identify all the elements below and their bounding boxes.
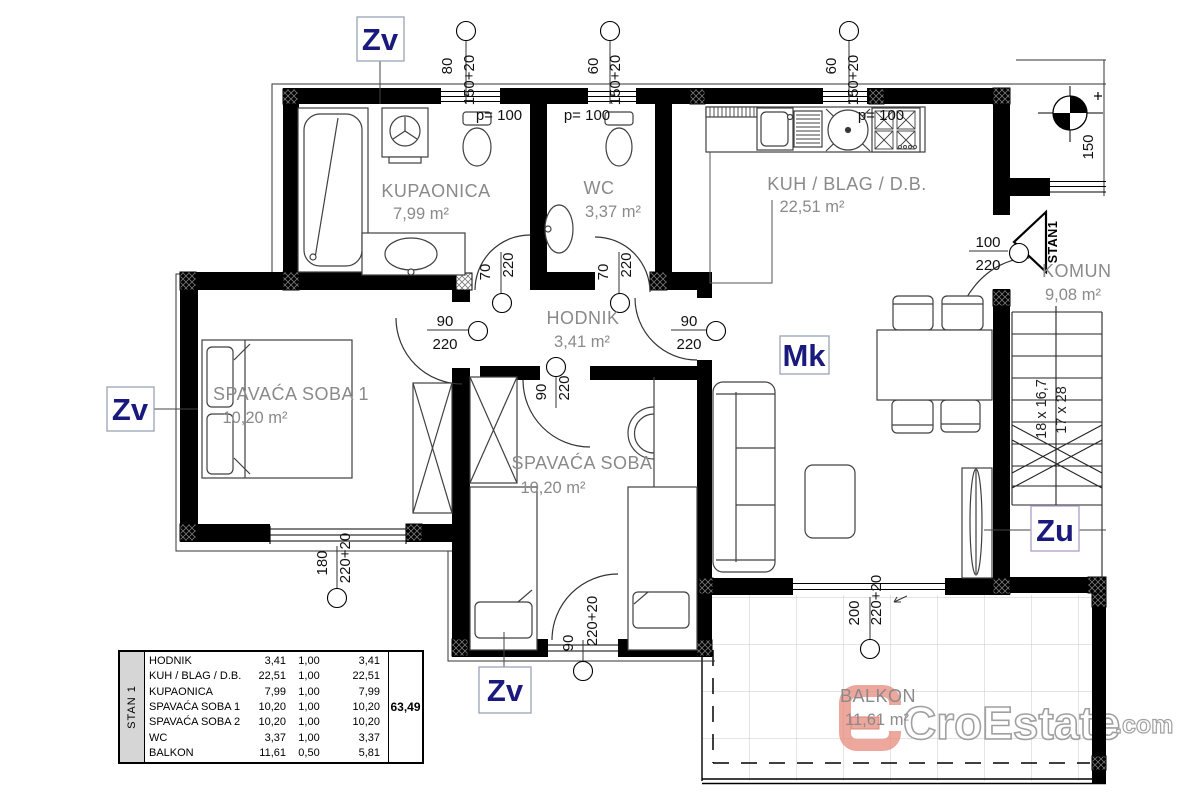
- row-area: 10,20: [242, 716, 286, 728]
- row-value: 3,41: [332, 655, 388, 667]
- stairs-tread-dim: 17 x 28: [1054, 386, 1070, 434]
- dining-chair: [893, 296, 933, 330]
- marker-zu: Zu: [1036, 513, 1074, 548]
- table-row: KUPAONICA 7,99 1,00 7,99: [145, 684, 388, 699]
- stairs-riser-dim: 18 x 16,7: [1034, 379, 1050, 439]
- row-coef: 1,00: [286, 701, 332, 713]
- room-area-wc: 3,37 m²: [585, 203, 641, 221]
- dining-table: [877, 330, 992, 400]
- table-row: WC 3,37 1,00 3,37: [145, 730, 388, 745]
- dim-window1-height: 150+20: [461, 55, 478, 105]
- row-area: 3,41: [242, 655, 286, 667]
- dim-livingbalcony-width: 200: [846, 600, 863, 625]
- room-area-spavaca2: 10,20 m²: [520, 479, 586, 497]
- marker-zv-left: Zv: [112, 392, 149, 427]
- dim-wcdoor-width: 70: [595, 264, 612, 281]
- room-area-hodnik: 3,41 m²: [554, 333, 610, 351]
- total-value: 63,49: [390, 700, 420, 714]
- row-name: WC: [145, 732, 242, 744]
- watermark-brand: CroEstate: [903, 697, 1120, 749]
- entrance-arrow-label: STAN1: [1046, 221, 1060, 264]
- dim-bedroom2balcony-height: 220+20: [584, 596, 601, 646]
- room-label-spavaca1: SPAVAĆA SOBA 1: [213, 383, 369, 404]
- room-label-balkon: BALKON: [840, 686, 916, 706]
- area-table: STAN 1 HODNIK 3,41 1,00 3,41 KUH / BLAG …: [118, 650, 424, 764]
- row-coef: 1,00: [286, 670, 332, 682]
- room-area-kupaonica: 7,99 m²: [393, 205, 449, 223]
- row-value: 3,37: [332, 732, 388, 744]
- dim-window3-width: 60: [823, 58, 840, 75]
- marker-zv-top: Zv: [362, 22, 399, 57]
- row-coef: 0,50: [286, 747, 332, 759]
- dim-window3-parapet: p= 100: [858, 107, 904, 124]
- dim-livingbalcony-height: 220+20: [868, 575, 885, 625]
- bath-sink: [385, 238, 437, 270]
- dining-chair: [941, 400, 980, 432]
- north-symbol: [1038, 86, 1103, 142]
- dim-bathdoor-width: 70: [477, 264, 494, 281]
- dim-livingdoor-width: 90: [681, 313, 698, 330]
- kitchen-zone-line: [710, 152, 772, 283]
- dim-stairwell-window: 150: [1080, 134, 1097, 159]
- dining-chair: [942, 296, 983, 330]
- dim-window1-width: 80: [439, 58, 456, 75]
- row-area: 7,99: [242, 686, 286, 698]
- row-value: 10,20: [332, 716, 388, 728]
- floor-plan-page: CroEstate .com: [0, 0, 1200, 800]
- kitchen-drainer: [794, 111, 822, 147]
- room-area-balkon: 11,61 m²: [845, 711, 909, 729]
- sofa: [713, 382, 775, 572]
- table-row: SPAVAĆA SOBA 2 10,20 1,00 10,20: [145, 715, 388, 730]
- room-label-kupaonica: KUPAONICA: [381, 181, 490, 201]
- level-mark: [1094, 92, 1102, 100]
- dim-bedroom1window-width: 180: [314, 550, 331, 575]
- dim-bedroom2door-width: 90: [533, 384, 550, 401]
- dim-bathdoor-height: 220: [500, 252, 517, 277]
- room-area-spavaca1: 10,20 m²: [222, 409, 288, 427]
- row-name: SPAVAĆA SOBA 2: [145, 716, 242, 728]
- dim-bedroom1door-height: 220: [432, 336, 457, 353]
- room-label-spavaca2: SPAVAĆA SOBA: [511, 452, 652, 473]
- room-label-komunikacija: KOMUN: [1042, 261, 1112, 281]
- area-table-group: STAN 1: [120, 652, 145, 762]
- dim-livingdoor-height: 220: [676, 336, 701, 353]
- table-row: KUH / BLAG / D.B. 22,51 1,00 22,51: [145, 669, 388, 684]
- area-table-total: 63,49: [388, 652, 422, 762]
- marker-zv-bottom: Zv: [487, 673, 524, 708]
- room-label-wc: WC: [584, 178, 615, 198]
- row-area: 10,20: [242, 701, 286, 713]
- dim-entrance-height: 220: [975, 257, 1000, 274]
- row-value: 7,99: [332, 686, 388, 698]
- dim-window3-height: 150+20: [845, 55, 862, 105]
- table-row: BALKON 11,61 0,50 5,81: [145, 746, 388, 761]
- row-coef: 1,00: [286, 716, 332, 728]
- marker-mk: Mk: [782, 338, 826, 373]
- dim-bedroom2door-height: 220: [556, 375, 573, 400]
- row-value: 5,81: [332, 747, 388, 759]
- coffee-table: [805, 465, 855, 538]
- watermark-tld: .com: [1115, 711, 1173, 739]
- dim-entrance-width: 100: [975, 234, 1000, 251]
- room-area-kuhinja: 22,51 m²: [779, 198, 845, 216]
- dim-window2-height: 150+20: [607, 55, 624, 105]
- dim-bedroom1door-width: 90: [437, 313, 454, 330]
- table-row: HODNIK 3,41 1,00 3,41: [145, 653, 388, 668]
- dim-window2-parapet: p= 100: [564, 107, 610, 124]
- dim-window2-width: 60: [585, 58, 602, 75]
- dim-bedroom2balcony-width: 90: [560, 635, 577, 652]
- row-name: KUPAONICA: [145, 686, 242, 698]
- row-area: 22,51: [242, 670, 286, 682]
- row-area: 3,37: [242, 732, 286, 744]
- row-coef: 1,00: [286, 655, 332, 667]
- row-name: HODNIK: [145, 655, 242, 667]
- dim-wcdoor-height: 220: [618, 252, 635, 277]
- room-label-hodnik: HODNIK: [546, 308, 619, 328]
- room-label-kuhinja: KUH / BLAG / D.B.: [767, 174, 927, 194]
- area-table-group-label: STAN 1: [126, 685, 138, 729]
- dim-bedroom1window-height: 220+20: [337, 533, 354, 583]
- table-row: SPAVAĆA SOBA 1 10,20 1,00 10,20: [145, 699, 388, 714]
- row-coef: 1,00: [286, 686, 332, 698]
- row-name: KUH / BLAG / D.B.: [145, 670, 242, 682]
- area-table-rows: HODNIK 3,41 1,00 3,41 KUH / BLAG / D.B. …: [145, 652, 388, 762]
- row-coef: 1,00: [286, 732, 332, 744]
- row-area: 11,61: [242, 747, 286, 759]
- row-value: 10,20: [332, 701, 388, 713]
- dining-chair: [892, 400, 933, 433]
- living-furniture: [713, 296, 992, 578]
- room-area-komunikacija: 9,08 m²: [1045, 286, 1101, 304]
- row-name: BALKON: [145, 747, 242, 759]
- row-name: SPAVAĆA SOBA 1: [145, 701, 242, 713]
- dim-window1-parapet: p= 100: [476, 107, 522, 124]
- row-value: 22,51: [332, 670, 388, 682]
